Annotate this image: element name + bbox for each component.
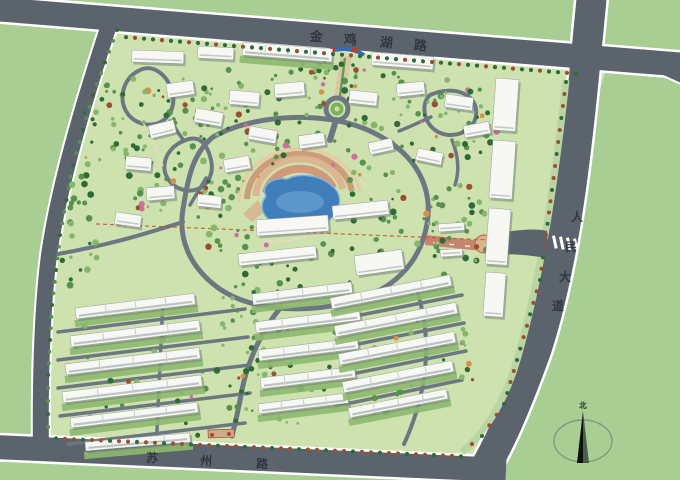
screenshot-frame: 金 鸡 湖 路 人 民 大 道 苏 州 路 北	[0, 0, 680, 480]
road-label-bottom: 路	[256, 456, 270, 472]
building	[438, 222, 467, 234]
road-label-bottom: 苏	[146, 450, 159, 466]
building	[131, 50, 185, 66]
building	[197, 46, 236, 62]
road-label-top: 鸡	[342, 31, 357, 47]
building	[274, 81, 307, 100]
building	[146, 185, 177, 203]
road-label-right: 人	[571, 209, 584, 224]
building	[396, 81, 427, 100]
road-label-top: 路	[413, 38, 428, 54]
road-label-top: 湖	[379, 35, 393, 51]
compass-label: 北	[579, 400, 587, 410]
road-label-bottom: 州	[199, 454, 213, 469]
road-label-top: 金	[308, 28, 324, 44]
building	[229, 90, 262, 109]
building	[125, 156, 154, 174]
building	[483, 272, 508, 320]
road-label-right: 道	[552, 298, 564, 313]
building	[348, 90, 379, 109]
site-plan-map: 金 鸡 湖 路 人 民 大 道 苏 州 路 北	[0, 0, 680, 480]
road-label-right: 民	[565, 240, 577, 254]
building	[440, 248, 465, 259]
road-label-right: 大	[559, 269, 571, 284]
building	[196, 194, 223, 211]
south-entrance	[208, 429, 234, 438]
building	[489, 140, 518, 202]
building	[485, 208, 513, 268]
building	[492, 78, 521, 134]
